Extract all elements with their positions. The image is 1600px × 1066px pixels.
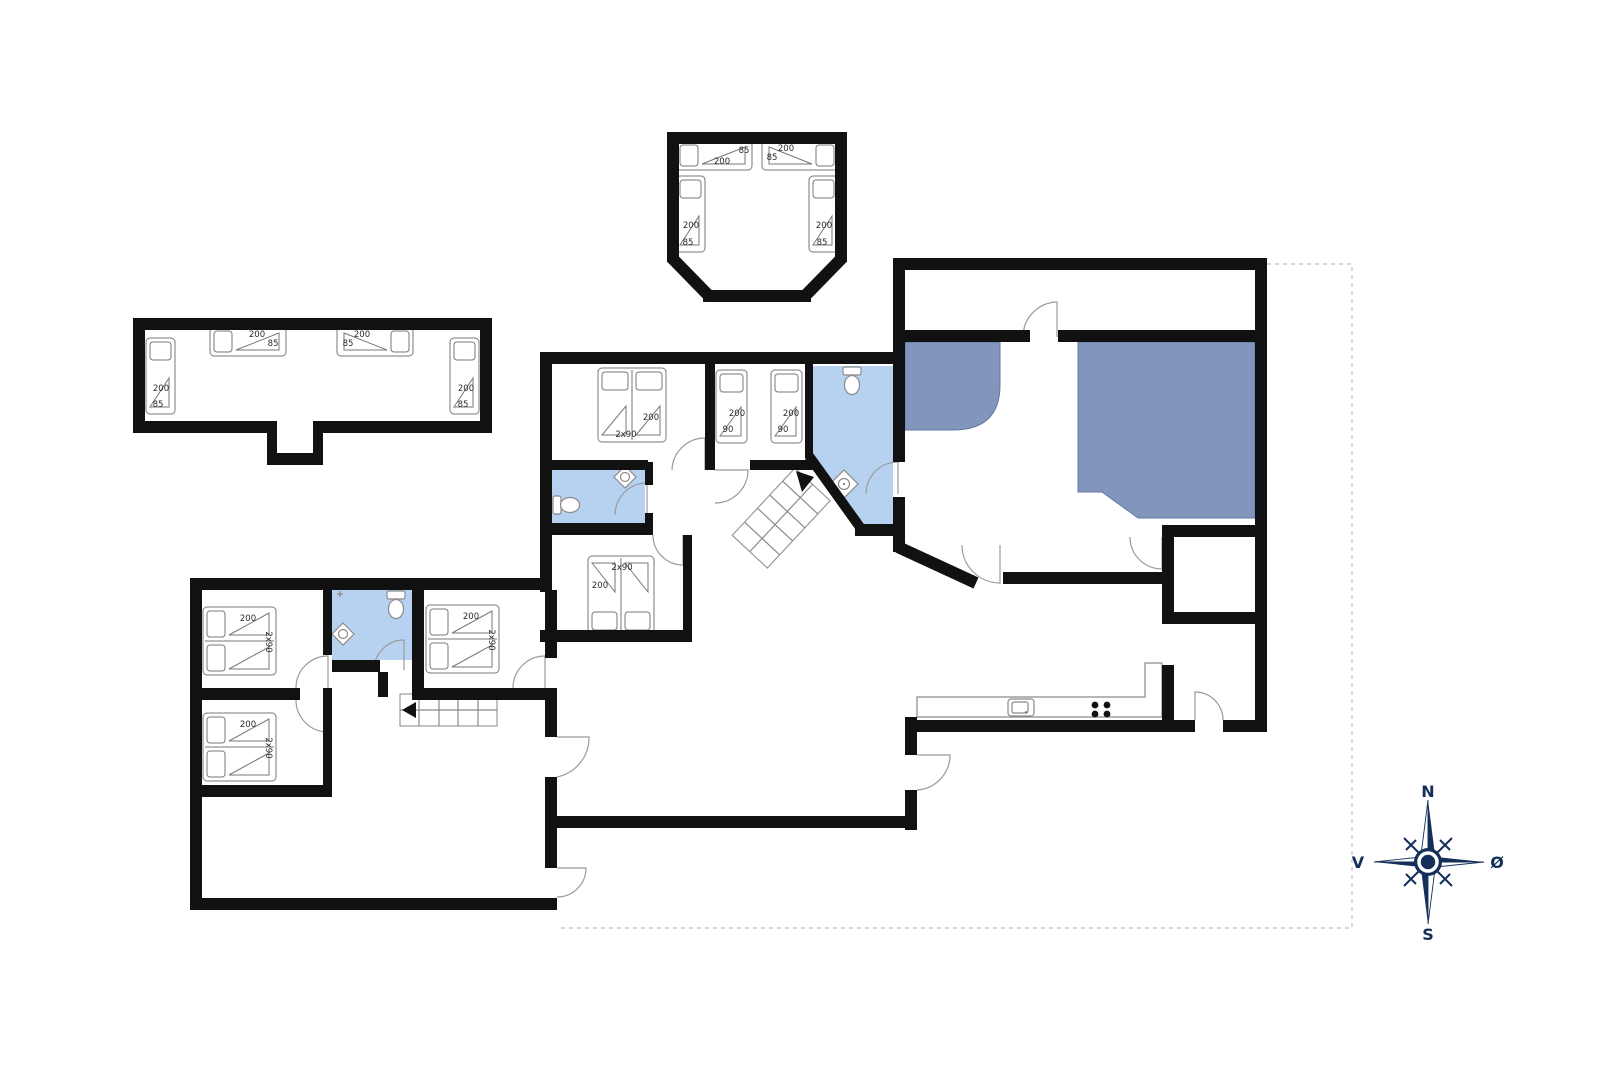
bed-size-label: 2x90 <box>263 631 273 652</box>
bed-size-label: 2x90 <box>611 563 632 573</box>
bed-size-label: 200 <box>783 409 799 419</box>
kitchen-counter <box>917 663 1162 717</box>
bed-symbol: 20090 <box>771 370 802 443</box>
spa-shape <box>905 342 1000 430</box>
bed-symbol: 20085 <box>762 141 838 170</box>
compass-rose: N S V Ø <box>1352 782 1504 944</box>
bed-size-label: 200 <box>714 157 730 167</box>
bed-size-label: 200 <box>458 384 474 394</box>
bed-size-label: 85 <box>767 153 778 163</box>
compass-label-west: V <box>1352 853 1365 872</box>
toilet-symbol <box>553 496 580 514</box>
bed-size-label: 85 <box>458 400 469 410</box>
bed-size-label: 2x90 <box>615 430 636 440</box>
bed-size-label: 85 <box>268 339 279 349</box>
bed-size-label: 200 <box>153 384 169 394</box>
bed-symbol: 2002x90 <box>203 607 276 675</box>
compass-label-south: S <box>1422 925 1434 944</box>
bed-size-label: 85 <box>683 238 694 248</box>
bed-size-label: 200 <box>240 614 256 624</box>
bed-symbol: 2002x90 <box>203 713 276 781</box>
bed-symbol: 20085 <box>676 176 705 252</box>
bed-symbol: 20085 <box>146 338 175 414</box>
stairs-symbol-diagonal <box>732 468 830 568</box>
bed-size-label: 200 <box>463 612 479 622</box>
bed-size-label: 200 <box>683 221 699 231</box>
toilet-symbol <box>387 591 405 619</box>
bed-size-label: 200 <box>729 409 745 419</box>
floorplan-canvas: 8520020085200852008520085200852008520085… <box>0 0 1600 1066</box>
bed-symbol: 85200 <box>676 141 752 170</box>
bed-symbol: 2002x90 <box>598 368 666 442</box>
bed-size-label: 200 <box>643 413 659 423</box>
floorplan: 8520020085200852008520085200852008520085… <box>0 0 1600 1066</box>
pool-shape <box>1078 342 1255 518</box>
counter-outline <box>917 663 1162 717</box>
bed-size-label: 85 <box>343 339 354 349</box>
bed-size-label: 200 <box>778 144 794 154</box>
bed-symbol: 20085 <box>337 327 413 356</box>
bed-symbol: 2002x90 <box>426 605 499 673</box>
bed-size-label: 200 <box>240 720 256 730</box>
compass-label-east: Ø <box>1490 853 1504 872</box>
bed-symbol: 20085 <box>210 327 286 356</box>
bed-size-label: 200 <box>354 330 370 340</box>
compass-label-north: N <box>1421 782 1434 801</box>
bed-size-label: 200 <box>816 221 832 231</box>
bed-symbol: 2x90200 <box>588 556 654 634</box>
bed-symbol: 20085 <box>450 338 479 414</box>
bed-size-label: 200 <box>249 330 265 340</box>
toilet-symbol <box>843 367 861 395</box>
bed-size-label: 90 <box>778 425 789 435</box>
bed-size-label: 2x90 <box>486 629 496 650</box>
bed-size-label: 85 <box>153 400 164 410</box>
beds-layer: 8520020085200852008520085200852008520085… <box>146 141 838 781</box>
bed-symbol: 20085 <box>809 176 838 252</box>
bed-size-label: 85 <box>739 146 750 156</box>
bed-size-label: 200 <box>592 581 608 591</box>
bed-size-label: 85 <box>817 238 828 248</box>
bed-size-label: 2x90 <box>263 737 273 758</box>
spa-pool-shapes <box>905 342 1255 518</box>
bed-size-label: 90 <box>723 425 734 435</box>
bed-symbol: 20090 <box>716 370 747 443</box>
